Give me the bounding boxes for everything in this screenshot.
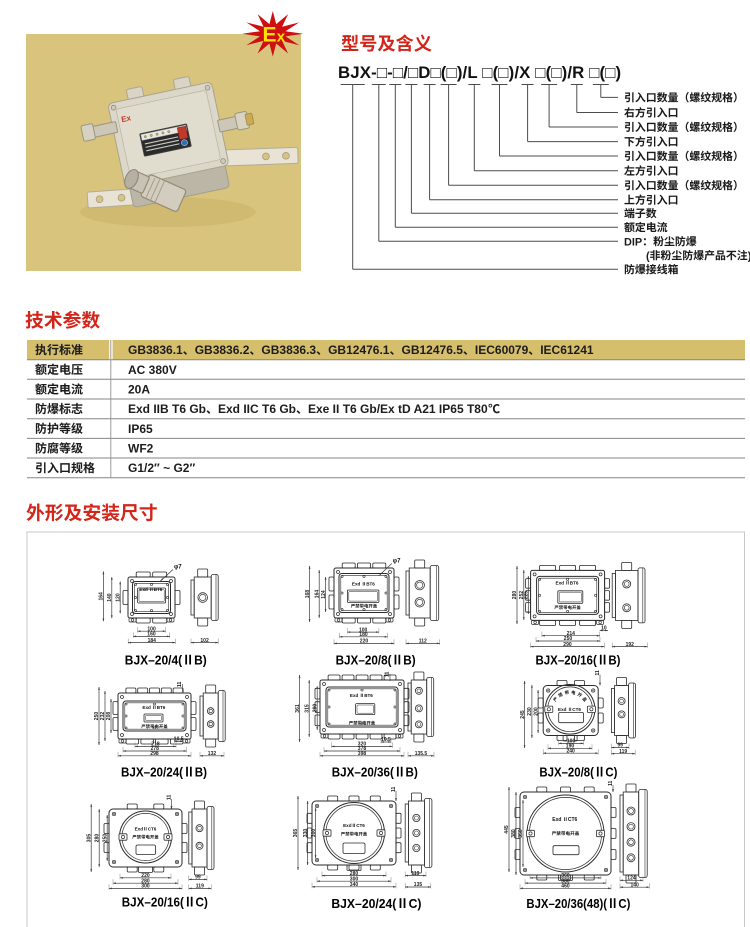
svg-text:330: 330 (303, 829, 309, 838)
svg-text:280: 280 (512, 591, 518, 600)
svg-text:135.5: 135.5 (415, 751, 428, 757)
svg-text:290: 290 (312, 704, 318, 713)
svg-text:CT6: CT6 (148, 827, 157, 832)
svg-text:298: 298 (150, 751, 159, 757)
svg-text:280: 280 (94, 834, 100, 843)
svg-text:φ7: φ7 (393, 559, 401, 565)
svg-text:Exe II T6 Gb/Ex tD A21 IP65 T8: Exe II T6 Gb/Ex tD A21 IP65 T80 (308, 402, 488, 416)
svg-text:250: 250 (102, 834, 108, 843)
svg-text:132: 132 (208, 751, 217, 757)
svg-text:11: 11 (177, 681, 183, 687)
svg-text:B): B) (195, 765, 207, 780)
svg-text:119: 119 (411, 871, 419, 877)
svg-text:99: 99 (195, 875, 201, 881)
svg-text:460: 460 (561, 884, 570, 890)
svg-text:Exd IIB T6 Gb: Exd IIB T6 Gb (128, 402, 206, 416)
svg-text:245: 245 (520, 710, 526, 719)
svg-text:Exd: Exd (558, 707, 567, 712)
svg-text:BJX–20/24(: BJX–20/24( (121, 765, 184, 780)
svg-text:CT6: CT6 (356, 823, 365, 828)
svg-text:BT6: BT6 (366, 582, 375, 587)
svg-text:IEC61241: IEC61241 (540, 343, 594, 357)
svg-text:BJX–20/36(48)(: BJX–20/36(48)( (526, 896, 607, 911)
svg-text:140: 140 (631, 882, 640, 888)
svg-text:Exd: Exd (352, 582, 361, 587)
svg-text:380: 380 (511, 829, 517, 838)
svg-text:445: 445 (504, 825, 510, 834)
svg-text:Exd: Exd (135, 827, 144, 832)
svg-text:10: 10 (601, 626, 607, 632)
svg-text:200: 200 (533, 707, 539, 716)
svg-text:Exd IIC T6 Gb: Exd IIC T6 Gb (218, 402, 296, 416)
svg-text:365: 365 (293, 829, 299, 838)
svg-text:φ7: φ7 (174, 565, 182, 571)
svg-text:300: 300 (311, 829, 317, 838)
svg-text:300: 300 (141, 884, 150, 890)
svg-text:B): B) (194, 653, 207, 668)
svg-text:11: 11 (391, 786, 397, 792)
svg-text:BT6: BT6 (364, 693, 373, 698)
svg-text:164: 164 (99, 592, 105, 601)
svg-text:240: 240 (567, 748, 576, 754)
svg-text:168: 168 (305, 590, 311, 599)
svg-text:C): C) (196, 895, 208, 910)
svg-text:124: 124 (321, 590, 327, 599)
svg-text:10.5: 10.5 (174, 737, 184, 743)
svg-text:184: 184 (148, 638, 157, 644)
svg-text:BT6: BT6 (157, 705, 166, 710)
svg-text:BJX–20/36(: BJX–20/36( (332, 765, 395, 780)
svg-text:x: x (277, 28, 286, 45)
svg-text:CT6: CT6 (572, 707, 581, 712)
svg-text:112: 112 (419, 639, 427, 645)
svg-text:340: 340 (350, 882, 359, 888)
svg-text:BJX–20/4(: BJX–20/4( (125, 653, 183, 668)
svg-text:BJX–20/16(: BJX–20/16( (122, 895, 185, 910)
svg-text:C): C) (605, 765, 617, 780)
svg-text:BJX-□-□/□D□(□)/L □(□)/X □(□)/R: BJX-□-□/□D□(□)/L □(□)/X □(□)/R □(□) (338, 63, 621, 82)
svg-text:119: 119 (619, 749, 627, 755)
svg-text:398: 398 (358, 751, 367, 757)
svg-text:(: ( (646, 250, 650, 262)
svg-text:GB12476.1: GB12476.1 (328, 343, 390, 357)
svg-text:B): B) (403, 653, 415, 668)
svg-text:290: 290 (563, 642, 572, 648)
svg-text:315: 315 (304, 704, 310, 713)
svg-text:AC 380V: AC 380V (128, 363, 177, 377)
svg-text:B): B) (608, 653, 620, 668)
svg-text:IP65: IP65 (128, 422, 153, 436)
svg-text:GB3836.1: GB3836.1 (128, 343, 183, 357)
svg-text:192: 192 (626, 642, 635, 648)
svg-text:361: 361 (295, 704, 301, 713)
svg-text:GB12476.5: GB12476.5 (402, 343, 464, 357)
svg-text:225: 225 (524, 591, 530, 600)
svg-text:220: 220 (360, 639, 369, 645)
svg-text:BJX–20/24(: BJX–20/24( (331, 897, 397, 912)
svg-text:135: 135 (414, 882, 423, 888)
svg-text:Exd: Exd (552, 817, 561, 823)
svg-text:Exd: Exd (556, 581, 565, 586)
svg-text:124: 124 (627, 876, 636, 882)
svg-text:GB3836.3: GB3836.3 (261, 343, 316, 357)
svg-text:BT6: BT6 (570, 581, 579, 586)
svg-text:BJX–20/8(: BJX–20/8( (336, 653, 393, 668)
svg-text:11: 11 (385, 671, 391, 677)
svg-text:180: 180 (359, 632, 368, 638)
svg-text:20A: 20A (128, 383, 150, 397)
svg-text:208: 208 (106, 712, 112, 721)
svg-text:BJX–20/8(: BJX–20/8( (539, 765, 594, 780)
svg-text:99: 99 (617, 743, 623, 749)
svg-text:Exd: Exd (139, 587, 148, 592)
svg-text:120: 120 (115, 593, 121, 602)
svg-text:Exd: Exd (350, 693, 359, 698)
svg-text:350: 350 (518, 829, 524, 838)
svg-text:Exd: Exd (142, 705, 151, 710)
svg-text:G1/2″ ~ G2″: G1/2″ ~ G2″ (128, 461, 195, 475)
svg-text:DIP: DIP (624, 236, 642, 248)
svg-text:C): C) (409, 897, 422, 912)
svg-text:GB3836.2: GB3836.2 (195, 343, 250, 357)
svg-text:IEC60079: IEC60079 (475, 343, 529, 357)
svg-text:B): B) (406, 765, 418, 780)
svg-text:BT6: BT6 (154, 587, 163, 592)
svg-text:102: 102 (200, 638, 209, 644)
svg-text:230: 230 (527, 707, 533, 716)
svg-text:305: 305 (86, 834, 92, 843)
svg-text:119: 119 (196, 884, 204, 890)
svg-text:E: E (263, 24, 277, 47)
svg-text:CT6: CT6 (568, 817, 578, 823)
svg-text:11: 11 (608, 780, 614, 786)
svg-text:10.5: 10.5 (381, 737, 391, 743)
svg-text:Exd: Exd (343, 823, 352, 828)
svg-text:11: 11 (595, 670, 601, 676)
svg-text:160: 160 (147, 632, 156, 638)
svg-text:164: 164 (314, 590, 320, 599)
svg-text:C): C) (618, 896, 630, 911)
svg-text:11: 11 (167, 794, 173, 800)
svg-text:BJX–20/16(: BJX–20/16( (535, 653, 597, 668)
svg-text:140: 140 (107, 593, 113, 602)
svg-text:WF2: WF2 (128, 442, 154, 456)
